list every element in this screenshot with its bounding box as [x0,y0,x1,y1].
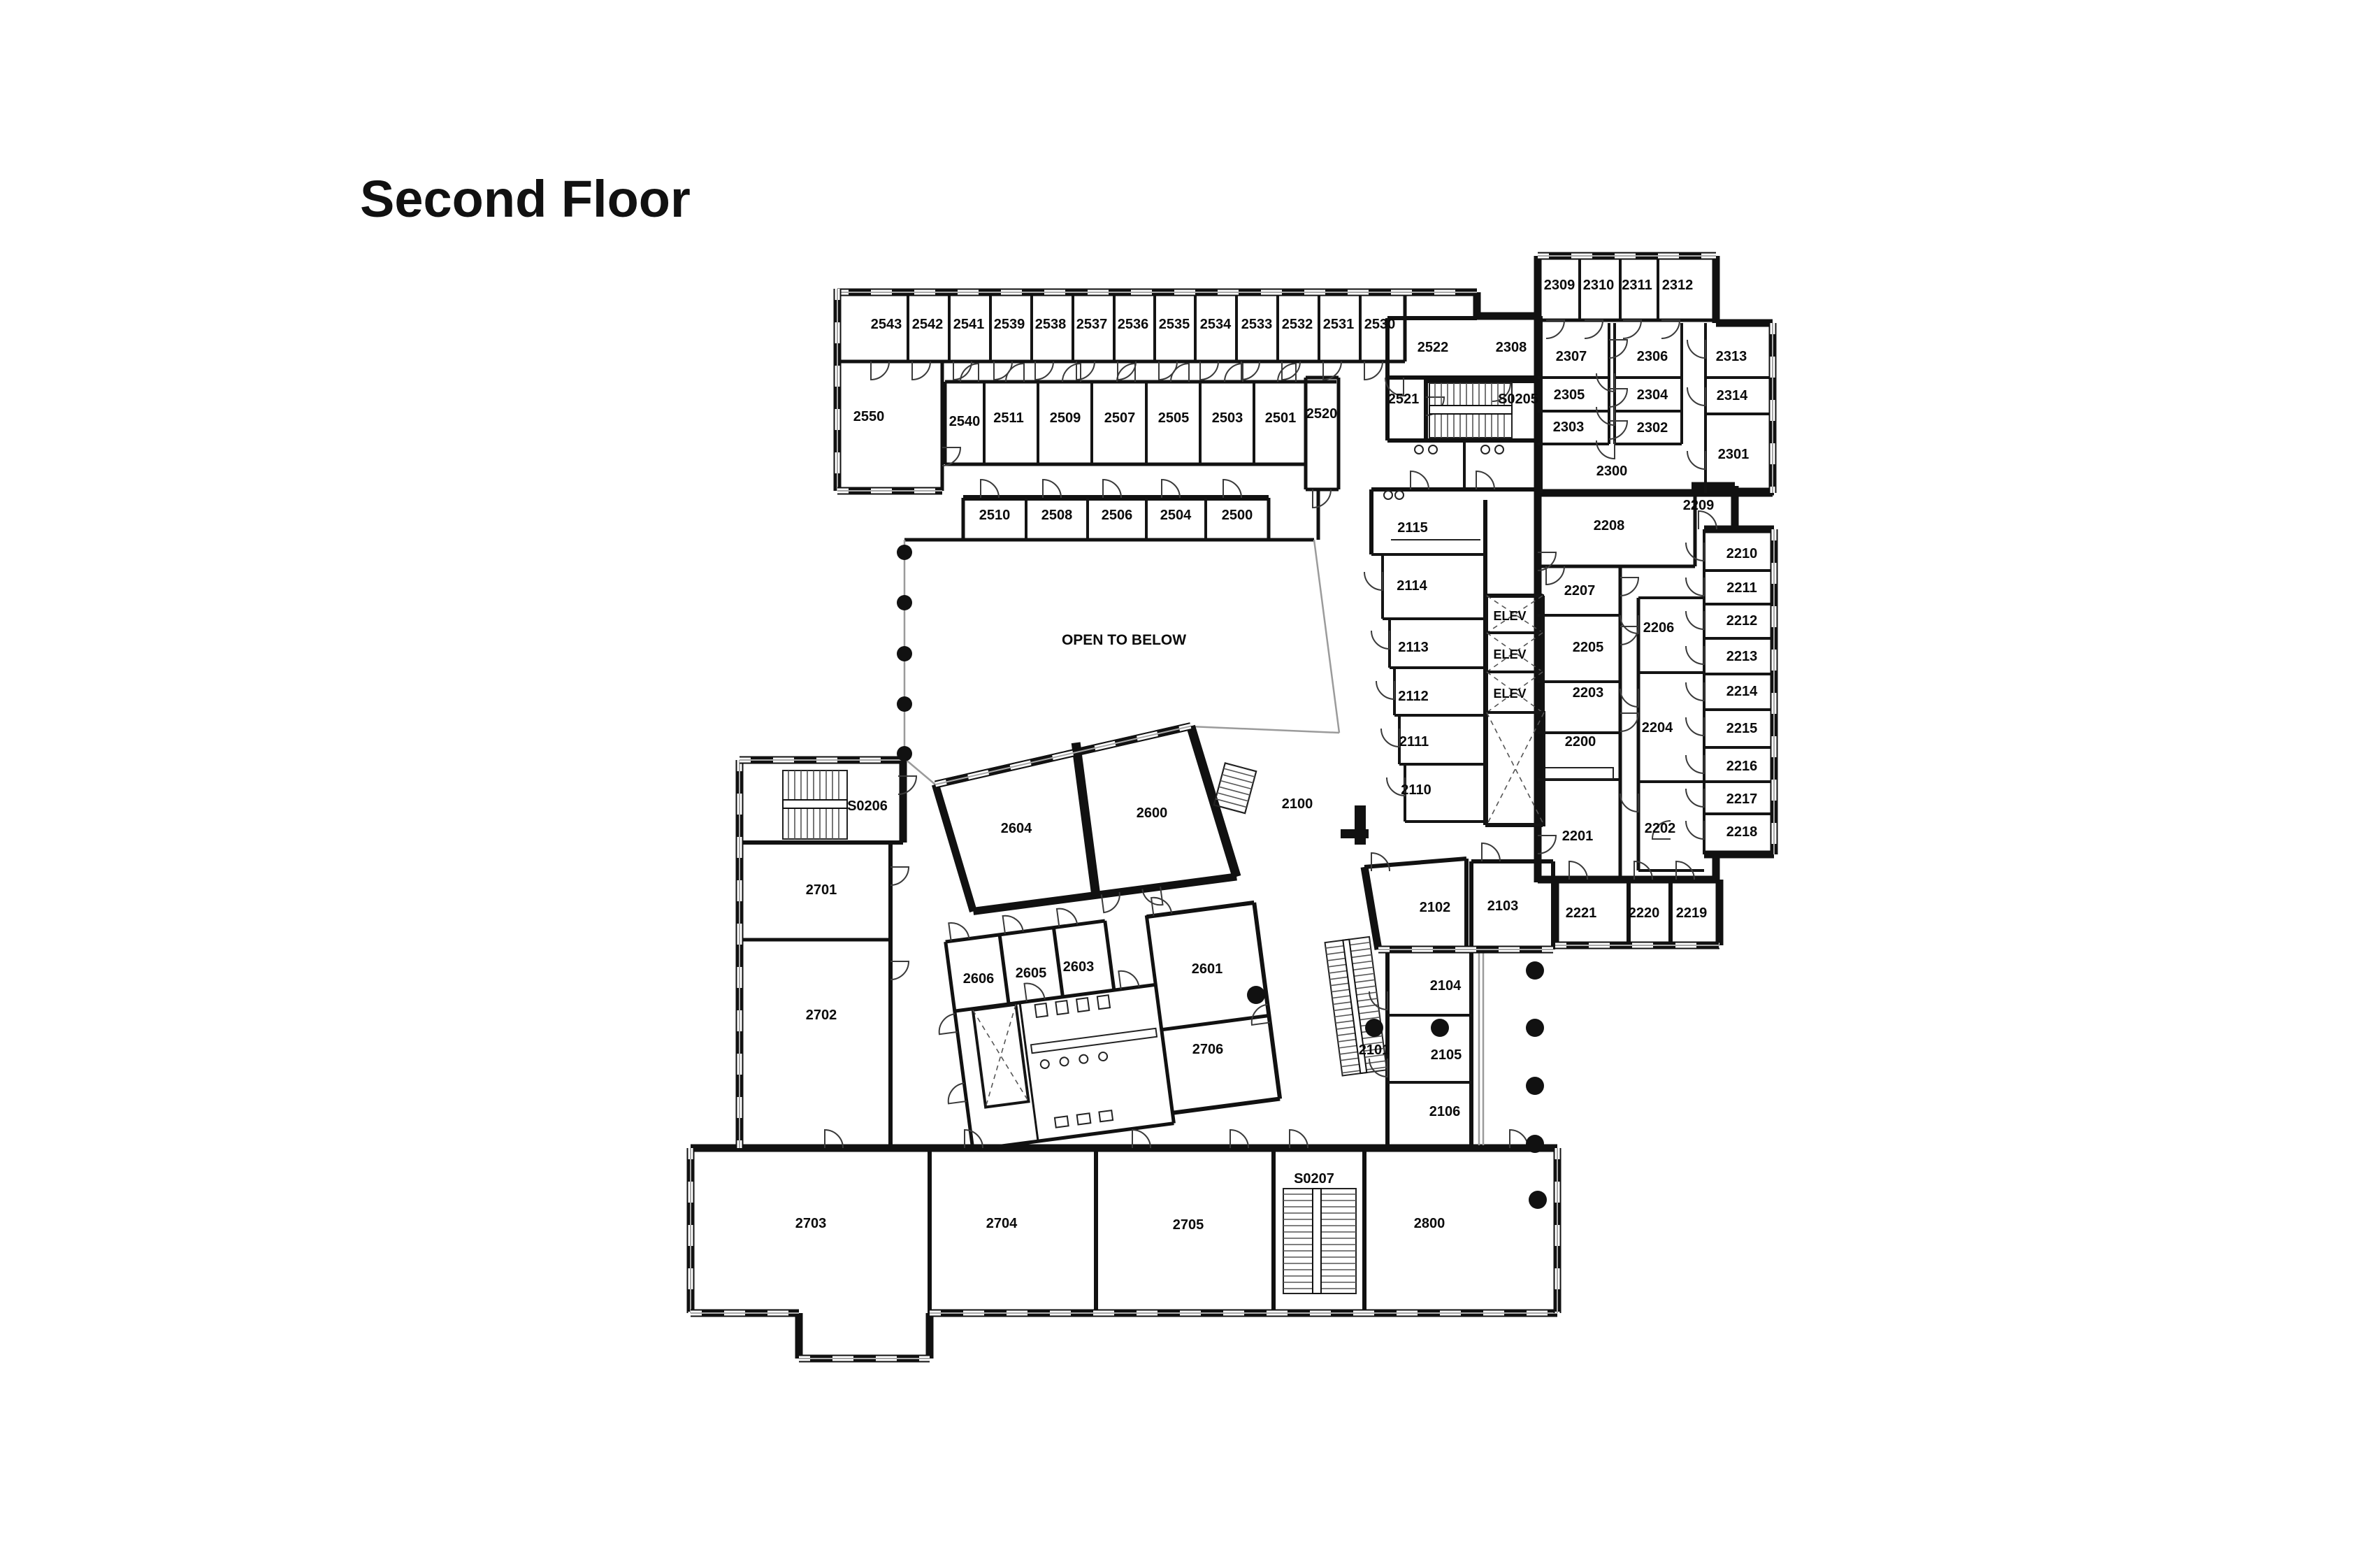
room-label-2216: 2216 [1726,759,1758,774]
door-arc [953,361,972,380]
room-label-2530: 2530 [1364,317,1396,332]
room-label-2111: 2111 [1399,734,1429,750]
staircase [1283,1189,1356,1293]
door-arc [1686,821,1704,839]
door-arc [1686,755,1704,773]
door-arc [1546,566,1564,585]
door-arc [1364,572,1383,590]
door-arc [1687,387,1705,406]
room-label-2221: 2221 [1566,905,1597,921]
door-arc [1609,340,1627,358]
room-label-2206: 2206 [1643,620,1675,636]
room-label-2308: 2308 [1496,340,1527,355]
room-label-2531: 2531 [1323,317,1355,332]
room-label-2202: 2202 [1645,821,1676,836]
room-label-2101: 2101 [1359,1042,1390,1058]
door-arc [1620,794,1638,812]
door-arc [1313,489,1331,508]
sink-icon [1415,445,1423,454]
room-label-2521: 2521 [1388,392,1420,407]
room-label-2304: 2304 [1637,387,1668,403]
door-arc [1620,713,1638,731]
room-label-2213: 2213 [1726,649,1758,664]
door-arc [1225,364,1243,382]
door-arc [1200,361,1218,380]
room-label-2550: 2550 [853,409,885,424]
room-label-2114: 2114 [1397,578,1427,594]
door-arc [1620,689,1638,707]
door-arc [1609,421,1627,439]
door-arc [1620,578,1638,596]
sink-icon [1495,445,1503,454]
room-label-2303: 2303 [1553,420,1585,435]
door-arc [1620,626,1638,645]
room-label-2209: 2209 [1683,498,1715,513]
door-arc [1686,682,1704,701]
door-arc [1687,451,1705,469]
room-label-2302: 2302 [1637,420,1668,436]
door-arc [1686,717,1704,736]
elevator-label: ELEV [1493,687,1526,701]
door-arc [1476,471,1494,489]
room-label-2210: 2210 [1726,546,1758,561]
room-label-2204: 2204 [1642,720,1673,736]
door-arc [1006,364,1024,382]
room-label-2115: 2115 [1397,520,1427,536]
room-label-S0205: S0205 [1498,392,1538,407]
corridor-stair [1214,763,1256,813]
room-label-2205: 2205 [1573,640,1604,655]
door-arc [1371,631,1390,649]
column-dot [1526,1019,1544,1037]
column-dot [897,545,912,560]
door-arc [912,361,930,380]
column-dot [897,595,912,610]
room-label-2110: 2110 [1401,782,1431,798]
room-label-2702: 2702 [806,1008,837,1023]
room-label-2207: 2207 [1564,583,1596,599]
room-label-2800: 2800 [1414,1216,1445,1231]
room-label-2505: 2505 [1158,410,1190,426]
door-arc [1596,407,1615,425]
room-label-2703: 2703 [795,1216,827,1231]
room-label-2536: 2536 [1118,317,1149,332]
room-label-2534: 2534 [1200,317,1232,332]
room-label-2220: 2220 [1629,905,1660,921]
door-arc [1371,853,1390,871]
room-label-2537: 2537 [1076,317,1108,332]
column-dot [897,646,912,661]
staircase [1214,763,1256,813]
room-label-2214: 2214 [1726,684,1758,699]
room-label-2106: 2106 [1429,1104,1461,1119]
room-label-2706: 2706 [1192,1042,1224,1057]
room-label-2310: 2310 [1583,278,1615,293]
room-label-2200: 2200 [1565,734,1596,750]
door-arc [1171,364,1189,382]
room-label-S0206: S0206 [847,798,888,814]
room-label-2522: 2522 [1418,340,1449,355]
room-label-2300: 2300 [1596,464,1628,479]
room-label-2208: 2208 [1594,518,1625,533]
room-label-2604: 2604 [1001,821,1032,836]
room-label-2533: 2533 [1241,317,1273,332]
door-arc [1376,681,1394,699]
door-arc [890,961,909,980]
door-arc [1546,320,1564,338]
column-dot [1529,1191,1547,1209]
room-label-2605: 2605 [1016,966,1047,981]
room-label-2506: 2506 [1102,508,1133,523]
room-label-2313: 2313 [1716,349,1747,364]
room-label-2600: 2600 [1137,805,1168,821]
column-dot [1526,1135,1544,1153]
room-label-2103: 2103 [1487,898,1519,914]
room-label-2301: 2301 [1718,447,1750,462]
door-arc [1686,611,1704,629]
room-label-2312: 2312 [1662,278,1694,293]
room-label-2541: 2541 [953,317,985,332]
room-label-2705: 2705 [1173,1217,1204,1233]
door-arc [960,364,979,382]
room-label-S0207: S0207 [1294,1171,1334,1187]
door-arc [1035,361,1053,380]
door-arc [1687,340,1705,358]
room-label-2503: 2503 [1212,410,1243,426]
column-dot [1247,986,1265,1004]
floor-plan-page: Second Floor [0,0,2380,1541]
column-dot [1365,1019,1383,1037]
room-label-2606: 2606 [963,971,995,987]
room-label-2542: 2542 [912,317,944,332]
column-dot [1526,1077,1544,1095]
door-arc [1364,361,1383,380]
column-dot [897,696,912,712]
column-dot [1526,961,1544,980]
room-label-2311: 2311 [1622,278,1652,293]
room-label-2102: 2102 [1420,900,1451,915]
door-arc [1686,646,1704,664]
staircase [783,770,847,839]
diagonal-band [904,707,1390,1152]
room-label-2314: 2314 [1717,388,1748,403]
room-label-2509: 2509 [1050,410,1081,426]
room-label-2113: 2113 [1398,640,1428,655]
room-label-2535: 2535 [1159,317,1190,332]
room-label-2500: 2500 [1222,508,1253,523]
door-arc [1620,615,1638,633]
open-to-below-label: OPEN TO BELOW [1062,632,1186,648]
room-label-2501: 2501 [1265,410,1297,426]
room-label-2212: 2212 [1726,613,1758,629]
room-label-2701: 2701 [806,882,837,898]
room-label-2217: 2217 [1726,791,1758,807]
door-arc [1623,320,1641,338]
room-label-2540: 2540 [949,414,981,429]
room-label-2309: 2309 [1544,278,1575,293]
room-label-2104: 2104 [1430,978,1462,994]
room-label-2520: 2520 [1306,406,1338,422]
room-label-2603: 2603 [1063,959,1095,975]
sink-icon [1395,491,1404,499]
page-title: Second Floor [360,170,691,228]
floor-plan-svg: Second Floor [0,0,2380,1541]
room-label-2306: 2306 [1637,349,1668,364]
door-arc [1381,729,1399,747]
door-arc [1411,471,1429,489]
door-arc [890,867,909,885]
room-label-2201: 2201 [1562,829,1594,844]
room-label-2601: 2601 [1192,961,1223,977]
room-label-2510: 2510 [979,508,1011,523]
room-label-2215: 2215 [1726,721,1758,736]
room-label-2100: 2100 [1282,796,1313,812]
room-label-2219: 2219 [1676,905,1708,921]
door-arc [1241,361,1260,380]
room-label-2203: 2203 [1573,685,1604,701]
door-arc [871,361,889,380]
room-label-2105: 2105 [1431,1047,1462,1063]
door-arc [1686,578,1704,596]
room-label-2538: 2538 [1035,317,1067,332]
room-label-2508: 2508 [1041,508,1073,523]
room-label-2218: 2218 [1726,824,1758,840]
door-arc [1661,320,1680,338]
room-label-2112: 2112 [1398,689,1428,704]
door-arc [1482,843,1500,861]
elevator-label: ELEV [1493,647,1526,661]
room-label-2307: 2307 [1556,349,1587,364]
sink-icon [1429,445,1437,454]
room-label-2539: 2539 [994,317,1025,332]
room-label-2507: 2507 [1104,410,1136,426]
sink-icon [1384,491,1392,499]
room-label-2211: 2211 [1726,580,1757,596]
door-arc [1585,320,1603,338]
room-label-2532: 2532 [1282,317,1313,332]
room-label-2704: 2704 [986,1216,1018,1231]
column-dot [897,746,912,761]
room-label-2504: 2504 [1160,508,1192,523]
column-dot [1431,1019,1449,1037]
room-label-2305: 2305 [1554,387,1585,403]
room-label-2511: 2511 [993,410,1023,426]
elevator-label: ELEV [1493,609,1526,623]
room-label-2543: 2543 [871,317,902,332]
sink-icon [1481,445,1490,454]
door-arc [1686,789,1704,807]
